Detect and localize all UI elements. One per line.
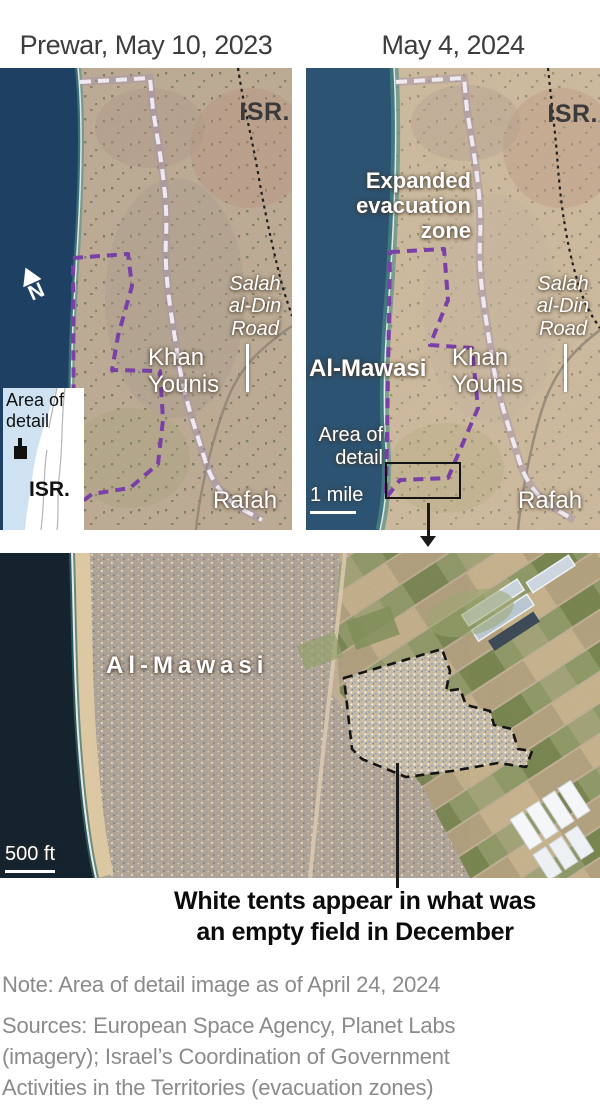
area-of-detail-rectangle	[385, 462, 461, 499]
isr-label: ISR.	[547, 100, 598, 128]
road-pointer-line	[246, 344, 249, 392]
title-right-map: May 4, 2024	[306, 30, 600, 61]
scale-bar-500-ft: 500 ft	[5, 843, 55, 873]
graphic-page: Prewar, May 10, 2023 May 4, 2024 ISR.	[0, 0, 600, 1120]
rafah-label: Rafah	[518, 488, 582, 515]
khan-younis-label: Khan Younis	[148, 345, 232, 399]
al-mawasi-label: Al-Mawasi	[309, 356, 426, 383]
detail-connector-line	[427, 503, 430, 536]
salah-al-din-road-label: Salah al-Din Road	[220, 273, 290, 340]
area-of-detail-label: Area of detail	[306, 424, 383, 470]
detail-connector-arrowhead-icon	[420, 536, 436, 547]
inset-isr-label: ISR.	[29, 478, 70, 502]
locator-inset-map: Area of detail ISR.	[3, 388, 84, 530]
inset-area-of-detail-label: Area of detail	[6, 390, 64, 432]
al-mawasi-label: Al-Mawasi	[106, 653, 268, 680]
sources-text: Sources: European Space Agency, Planet L…	[2, 1010, 592, 1103]
scale-label: 1 mile	[310, 484, 363, 506]
note-text: Note: Area of detail image as of April 2…	[2, 972, 440, 998]
expanded-evacuation-zone-label: Expanded evacuation zone	[326, 168, 471, 243]
scale-bar-line	[310, 511, 356, 514]
caption: White tents appear in what was an empty …	[110, 886, 600, 948]
isr-label: ISR.	[239, 98, 290, 126]
road-pointer-line	[564, 344, 567, 392]
area-of-detail-image: Al-Mawasi 500 ft	[0, 553, 600, 878]
khan-younis-label: Khan Younis	[452, 345, 536, 399]
rafah-label: Rafah	[213, 488, 277, 515]
inset-detail-marker	[14, 446, 27, 459]
caption-callout-line	[396, 763, 399, 888]
scale-bar-1-mile: 1 mile	[310, 484, 363, 514]
scale-bar-line	[5, 870, 55, 873]
map-may-2024: ISR. Expanded evacuation zone Al-Mawasi …	[306, 68, 600, 530]
detail-satellite	[0, 553, 600, 878]
title-left-map: Prewar, May 10, 2023	[0, 30, 292, 61]
scale-label: 500 ft	[5, 843, 55, 865]
map-prewar: ISR. Salah al-Din Road Khan Younis Rafah…	[0, 68, 292, 530]
salah-al-din-road-label: Salah al-Din Road	[528, 273, 598, 340]
